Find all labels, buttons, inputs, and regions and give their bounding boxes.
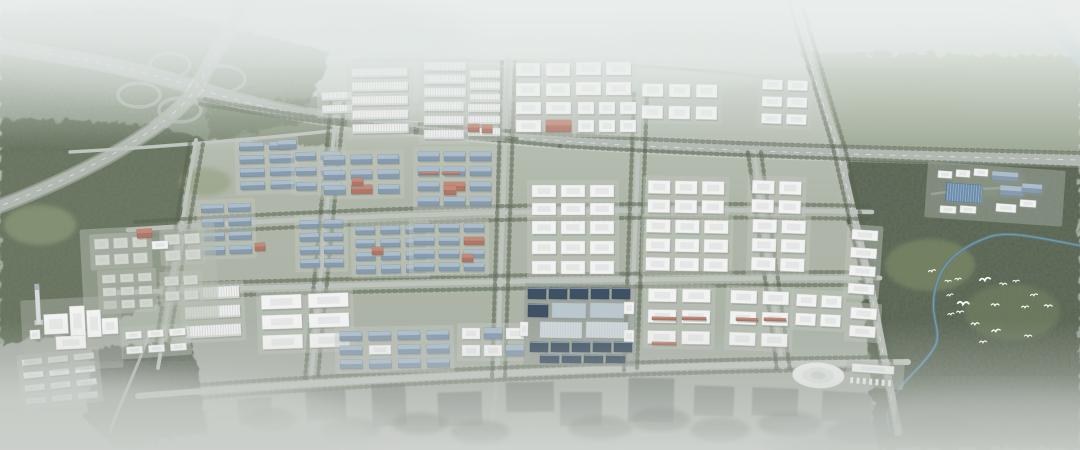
aerial-rendering-canvas bbox=[0, 0, 1080, 450]
haze-layer bbox=[0, 0, 1080, 450]
atmosphere-veil bbox=[0, 0, 1080, 450]
aerial-rendering bbox=[0, 0, 1080, 450]
